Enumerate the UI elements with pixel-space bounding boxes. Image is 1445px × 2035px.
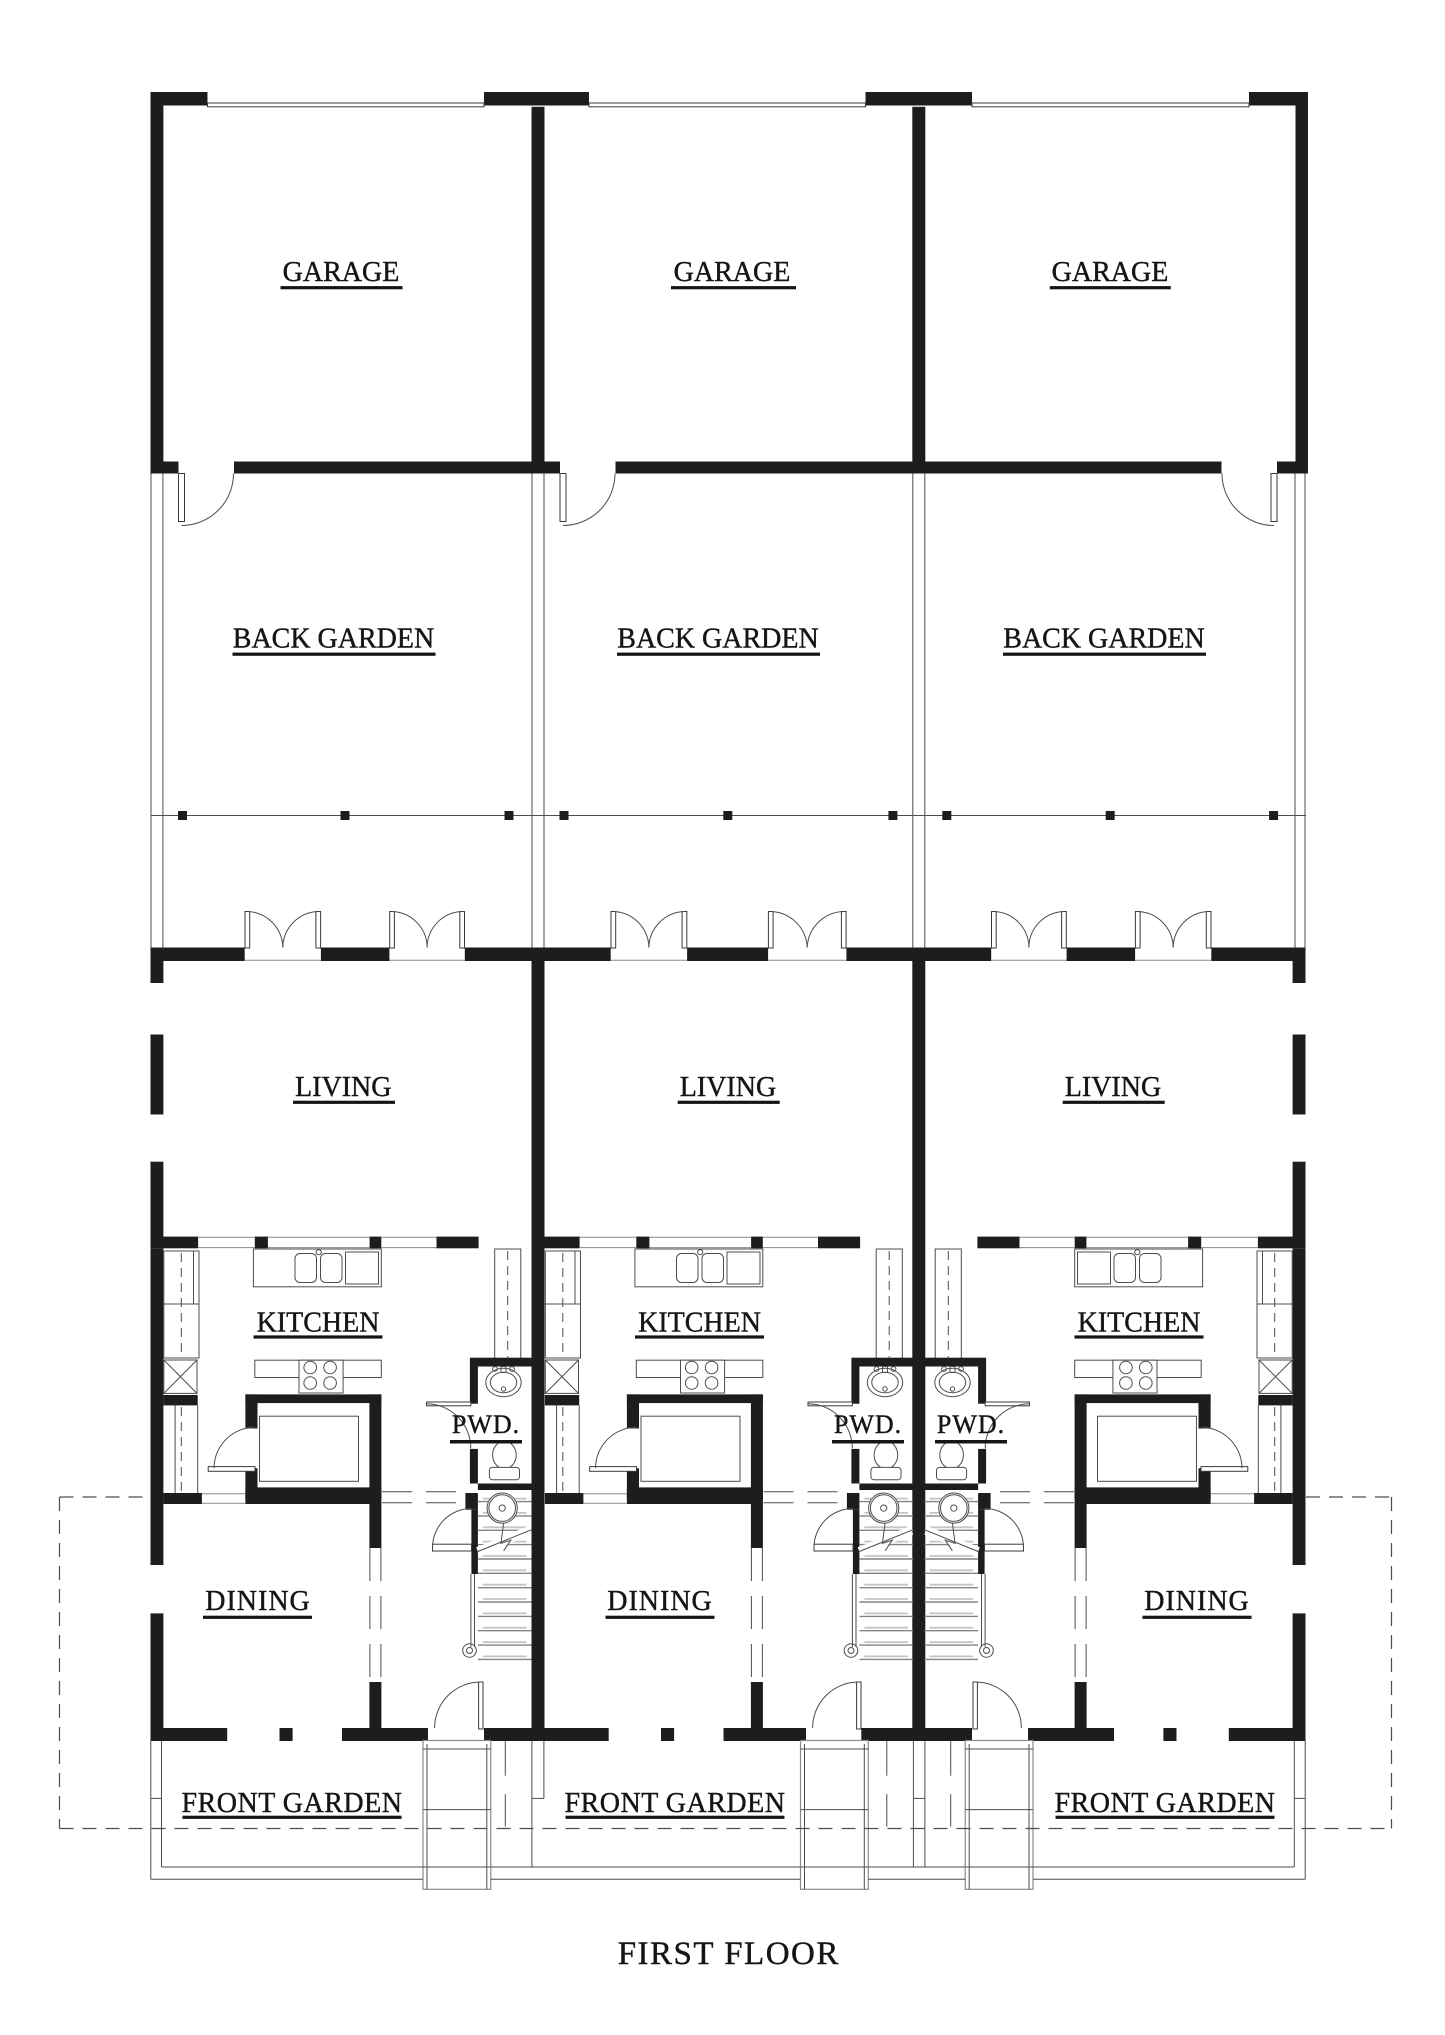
svg-text:LIVING: LIVING — [680, 1072, 776, 1103]
svg-text:GARAGE: GARAGE — [283, 257, 400, 288]
svg-text:DINING: DINING — [607, 1586, 713, 1617]
svg-text:FRONT GARDEN: FRONT GARDEN — [565, 1788, 786, 1819]
svg-text:KITCHEN: KITCHEN — [257, 1308, 380, 1339]
svg-text:KITCHEN: KITCHEN — [1078, 1308, 1201, 1339]
svg-text:BACK GARDEN: BACK GARDEN — [233, 623, 434, 654]
svg-text:LIVING: LIVING — [295, 1072, 391, 1103]
svg-text:PWD.: PWD. — [834, 1410, 902, 1439]
svg-text:DINING: DINING — [205, 1586, 311, 1617]
svg-text:BACK GARDEN: BACK GARDEN — [1003, 623, 1204, 654]
svg-text:FRONT GARDEN: FRONT GARDEN — [182, 1788, 403, 1819]
svg-text:LIVING: LIVING — [1065, 1072, 1161, 1103]
svg-text:GARAGE: GARAGE — [1052, 257, 1169, 288]
svg-text:BACK GARDEN: BACK GARDEN — [617, 623, 818, 654]
svg-text:PWD.: PWD. — [452, 1410, 520, 1439]
svg-text:PWD.: PWD. — [937, 1410, 1005, 1439]
svg-text:GARAGE: GARAGE — [674, 257, 791, 288]
svg-text:DINING: DINING — [1144, 1586, 1250, 1617]
svg-text:KITCHEN: KITCHEN — [638, 1308, 761, 1339]
svg-text:FRONT GARDEN: FRONT GARDEN — [1055, 1788, 1276, 1819]
svg-text:FIRST FLOOR: FIRST FLOOR — [618, 1936, 840, 1972]
